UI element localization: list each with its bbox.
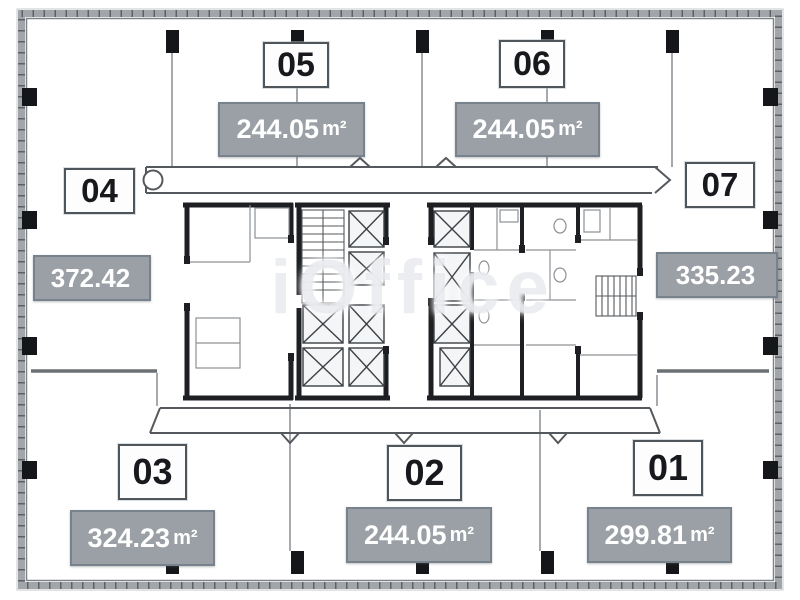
column: [166, 30, 179, 53]
unit-04-number-badge: 04: [64, 168, 135, 214]
column: [22, 461, 37, 479]
column: [22, 337, 37, 355]
unit-07-area-value: 335.23: [676, 260, 756, 291]
core-room-left-partitions: [189, 205, 289, 368]
corridor-bottom: [150, 408, 660, 443]
column: [763, 88, 778, 106]
core-bank-b: [427, 205, 524, 398]
unit-01-area-value: 299.81: [604, 520, 687, 551]
unit-02-area-value: 244.05: [364, 520, 447, 551]
core: [183, 203, 643, 400]
unit-06-number-badge: 06: [499, 40, 565, 88]
column: [22, 211, 37, 229]
restrooms: [474, 207, 520, 345]
unit-01-number-badge: 01: [633, 440, 703, 496]
unit-03-area-badge: 324.23 m²: [70, 510, 215, 566]
unit-05-area-badge: 244.05 m²: [218, 102, 365, 157]
column: [291, 551, 304, 574]
elevator-lobby: [391, 208, 427, 396]
unit-03-number-badge: 03: [118, 444, 187, 500]
core-bank-a: [295, 205, 390, 398]
unit-07-number-badge: 07: [685, 162, 755, 208]
unit-04-area-value: 372.42: [51, 263, 131, 294]
unit-03-area-value: 324.23: [87, 523, 170, 554]
unit-02-area-badge: 244.05 m²: [346, 507, 492, 563]
core-room-right: [576, 205, 642, 398]
unit-04-area-badge: 372.42: [33, 255, 151, 301]
column: [22, 88, 37, 106]
core-room-left: [183, 203, 293, 400]
unit-06-area-value: 244.05: [472, 114, 555, 145]
column: [763, 461, 778, 479]
unit-02-area-unit: m²: [450, 524, 474, 547]
unit-05-number-badge: 05: [263, 42, 329, 88]
elevator-shafts: [434, 211, 470, 386]
unit-05-area-value: 244.05: [236, 114, 319, 145]
unit-02-number-badge: 02: [387, 445, 462, 501]
unit-07-area-badge: 335.23: [656, 252, 778, 298]
floor-plan-image: iOffice 05 244.05 m² 06 244.05 m² 04 372…: [0, 0, 800, 600]
stair: [302, 210, 344, 303]
unit-01-area-unit: m²: [690, 524, 714, 547]
column: [666, 30, 679, 53]
unit-06-area-unit: m²: [558, 118, 582, 141]
column: [541, 551, 554, 574]
corridor-top: [144, 158, 671, 193]
unit-01-area-badge: 299.81 m²: [587, 507, 732, 563]
core-service-mid: [524, 205, 578, 398]
column: [416, 30, 429, 53]
unit-06-area-badge: 244.05 m²: [455, 102, 600, 157]
column: [763, 337, 778, 355]
stair: [596, 276, 636, 316]
column: [763, 211, 778, 229]
unit-03-area-unit: m²: [173, 527, 197, 550]
unit-05-area-unit: m²: [322, 118, 346, 141]
